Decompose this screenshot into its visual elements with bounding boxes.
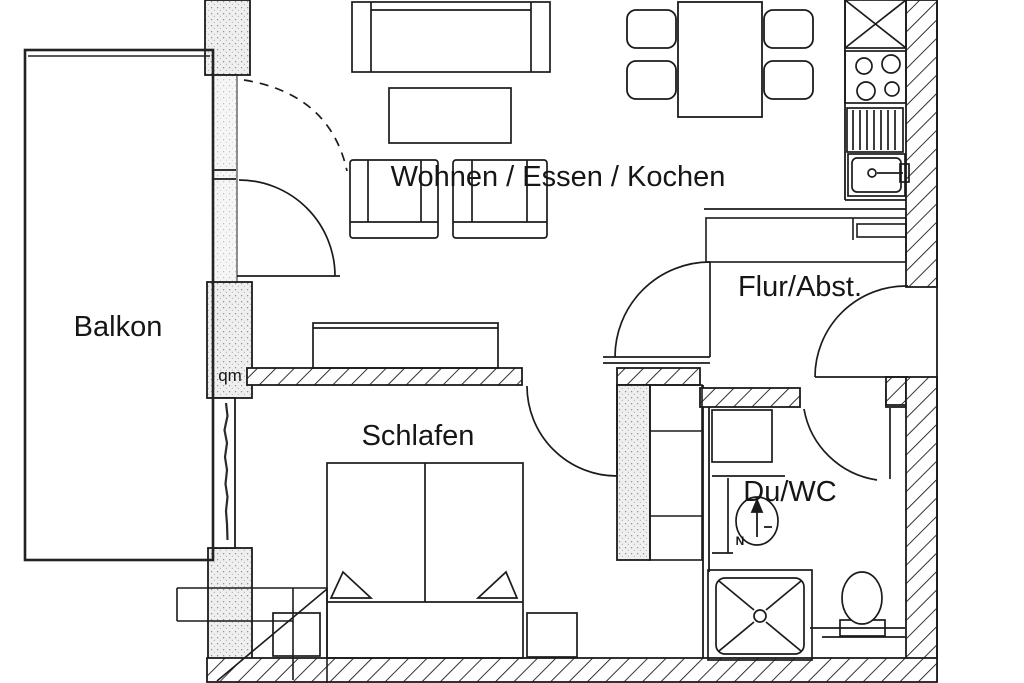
dining-furniture (627, 2, 813, 117)
bath-door (804, 408, 890, 480)
floor-plan-drawing: Wohnen / Essen / Kochen Balkon Schlafen … (0, 0, 1024, 683)
nightstand (527, 613, 577, 657)
double-bed (327, 463, 523, 658)
walls (205, 0, 937, 682)
sideboard (313, 323, 498, 368)
door-swing-arc (527, 386, 617, 476)
door-swing-arc (239, 180, 335, 276)
kitchen-sink (848, 154, 909, 196)
toilet (810, 572, 905, 637)
door-swing-arc (615, 262, 710, 357)
floor-plan: Wohnen / Essen / Kochen Balkon Schlafen … (0, 0, 1024, 683)
dining-chair (627, 10, 676, 48)
bedroom-door (527, 386, 617, 476)
label-bath: Du/WC (743, 476, 836, 508)
nightstand (273, 613, 320, 656)
wall (617, 368, 700, 385)
wall (247, 368, 522, 385)
dining-chair (764, 10, 813, 48)
pillow (478, 572, 517, 598)
wall (906, 0, 937, 287)
stove (845, 51, 906, 103)
dining-chair (627, 61, 676, 99)
label-living: Wohnen / Essen / Kochen (391, 161, 726, 193)
label-bedroom: Schlafen (362, 420, 475, 452)
wall (207, 658, 937, 682)
wall-stub (617, 385, 650, 560)
balcony (25, 50, 213, 560)
label-hall: Flur/Abst. (738, 271, 862, 303)
wall (886, 377, 906, 405)
living-hall-door (615, 262, 710, 357)
label-north: N (736, 534, 745, 548)
balcony-door-frame (213, 75, 237, 282)
balcony-outline (25, 50, 213, 560)
sofa (352, 2, 550, 72)
wardrobe (650, 385, 702, 560)
room-labels: Wohnen / Essen / Kochen Balkon Schlafen … (74, 161, 862, 548)
label-area-unit: qm (218, 366, 242, 385)
coffee-table (389, 88, 511, 143)
hall-cabinet (706, 218, 906, 262)
label-balcony: Balkon (74, 311, 163, 343)
bedroom-furniture (273, 463, 577, 658)
door-swing-arc-dashed (244, 80, 347, 171)
kitchen (845, 0, 909, 196)
door-swing-arc (804, 409, 877, 480)
shower (708, 570, 812, 660)
pillow (331, 572, 371, 598)
wall (906, 377, 937, 660)
wall-pier (208, 548, 252, 660)
bedroom-window (213, 398, 235, 548)
dining-chair (764, 61, 813, 99)
balcony-door (237, 80, 347, 276)
dining-table (678, 2, 762, 117)
wall (700, 388, 800, 407)
kitchen-tall-cabinet (845, 0, 906, 48)
oven (847, 108, 903, 152)
